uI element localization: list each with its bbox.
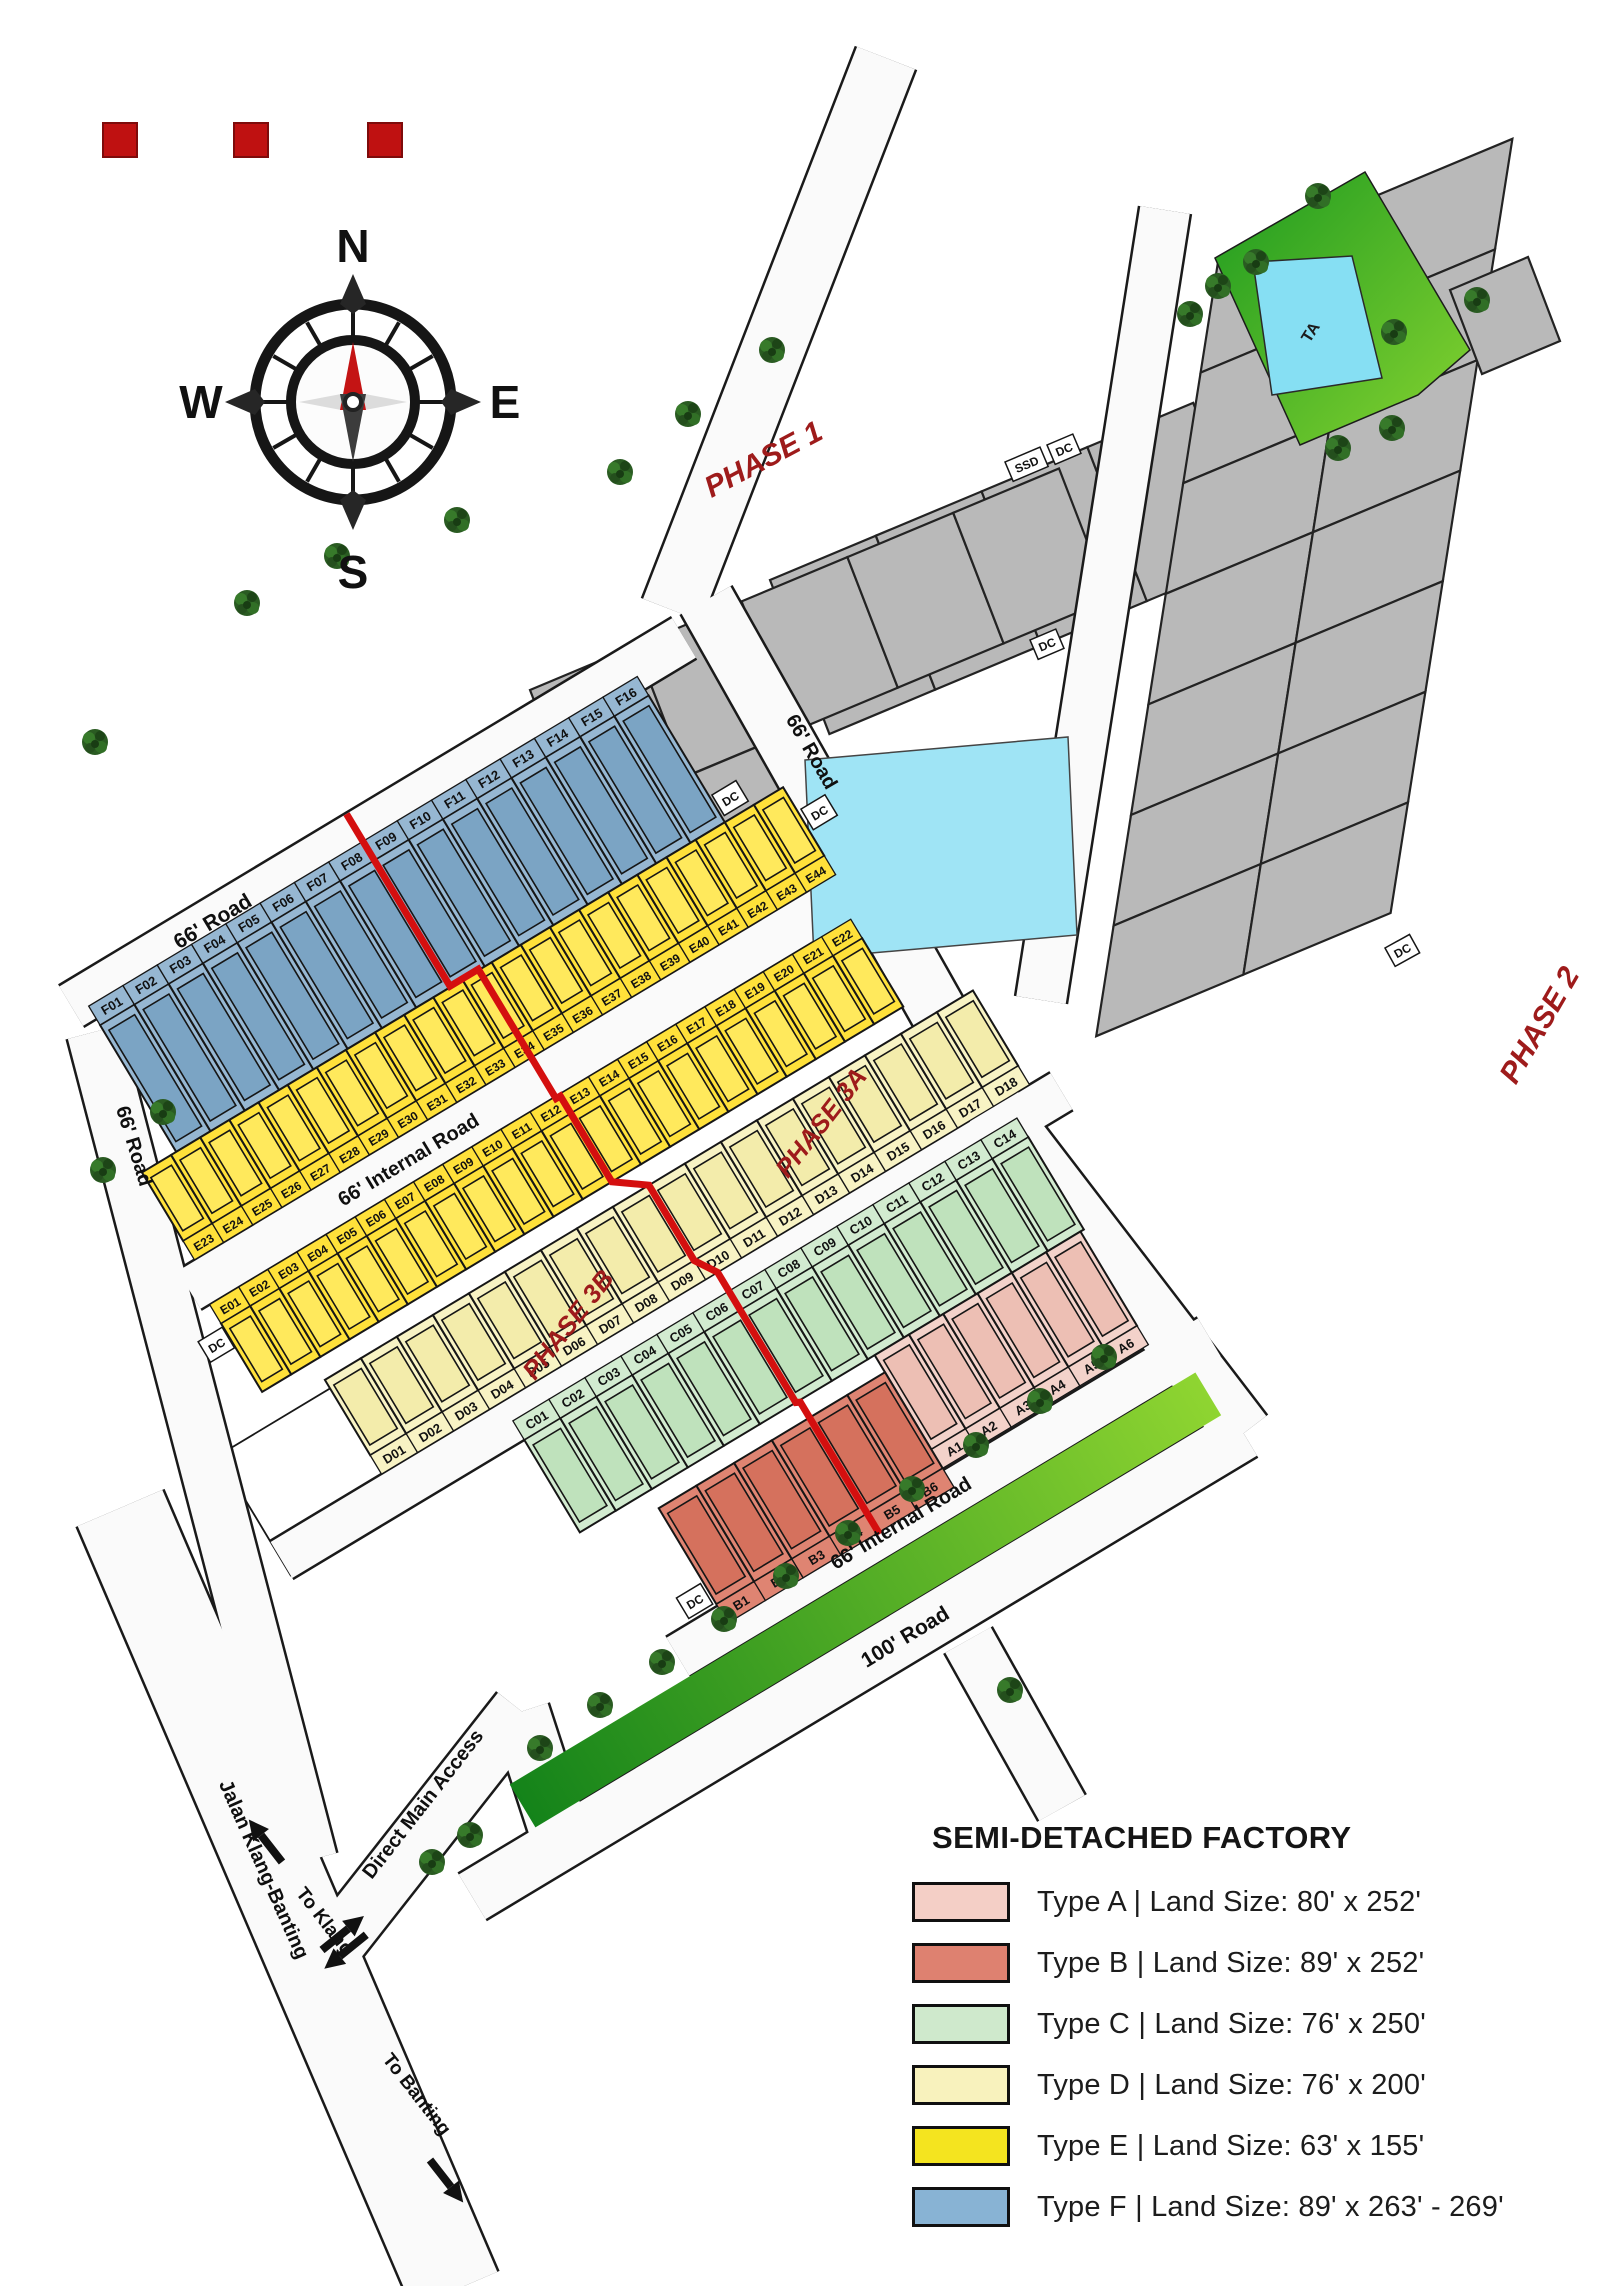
site-plan-page: F01F02F03F04F05F06F07F08F09F10F11F12F13F… [0,0,1600,2286]
logo-square [102,122,138,158]
tree-icon [150,1099,176,1125]
tree-icon [1305,183,1331,209]
tree-icon [649,1649,675,1675]
compass-n-label: N [336,220,369,272]
legend-entry-label: Type D | Land Size: 76' x 200' [1037,2069,1426,2102]
compass-e-label: E [490,376,521,428]
legend-row-type-B: Type B | Land Size: 89' x 252' [912,1943,1512,1983]
legend-entry-label: Type F | Land Size: 89' x 263' - 269' [1037,2191,1504,2224]
compass-s-label: S [338,546,369,598]
tree-icon [1381,319,1407,345]
tree-icon [963,1432,989,1458]
marker-DC: DC [1385,934,1420,966]
tree-icon [759,337,785,363]
tree-icon [1243,249,1269,275]
legend-swatch [912,2126,1010,2166]
logo-square [233,122,269,158]
legend-row-type-A: Type A | Land Size: 80' x 252' [912,1882,1512,1922]
tree-icon [997,1677,1023,1703]
tree-icon [773,1563,799,1589]
tree-icon [1091,1344,1117,1370]
legend-entry-label: Type C | Land Size: 76' x 250' [1037,2008,1426,2041]
tree-icon [675,401,701,427]
tree-icon [82,729,108,755]
legend-row-type-C: Type C | Land Size: 76' x 250' [912,2004,1512,2044]
tree-icon [607,459,633,485]
legend-row-type-D: Type D | Land Size: 76' x 200' [912,2065,1512,2105]
legend-entry-label: Type B | Land Size: 89' x 252' [1037,1947,1424,1980]
tree-icon [90,1157,116,1183]
compass-rose: N E S W [150,210,560,605]
tree-icon [1177,301,1203,327]
legend-entry-label: Type E | Land Size: 63' x 155' [1037,2130,1424,2163]
tree-icon [457,1822,483,1848]
legend-title: SEMI-DETACHED FACTORY [932,1820,1512,1856]
legend-row-type-F: Type F | Land Size: 89' x 263' - 269' [912,2187,1512,2227]
tree-icon [587,1692,613,1718]
legend-row-type-E: Type E | Land Size: 63' x 155' [912,2126,1512,2166]
tree-icon [899,1476,925,1502]
tree-icon [527,1735,553,1761]
legend-swatch [912,1943,1010,1983]
tree-icon [419,1849,445,1875]
tree-icon [1325,435,1351,461]
legend: SEMI-DETACHED FACTORY Type A | Land Size… [912,1820,1512,2248]
phase-2-label: PHASE 2 [1493,961,1586,1089]
legend-swatch [912,2004,1010,2044]
tree-icon [1027,1388,1053,1414]
legend-entry-label: Type A | Land Size: 80' x 252' [1037,1886,1421,1919]
tree-icon [1464,287,1490,313]
legend-swatch [912,2187,1010,2227]
compass-w-label: W [179,376,223,428]
legend-swatch [912,2065,1010,2105]
tree-icon [1379,415,1405,441]
tree-icon [835,1520,861,1546]
legend-swatch [912,1882,1010,1922]
legend-rows: Type A | Land Size: 80' x 252'Type B | L… [912,1882,1512,2227]
compass-icon: N E S W [179,220,520,598]
tree-icon [1205,273,1231,299]
logo-square [367,122,403,158]
tree-icon [711,1606,737,1632]
